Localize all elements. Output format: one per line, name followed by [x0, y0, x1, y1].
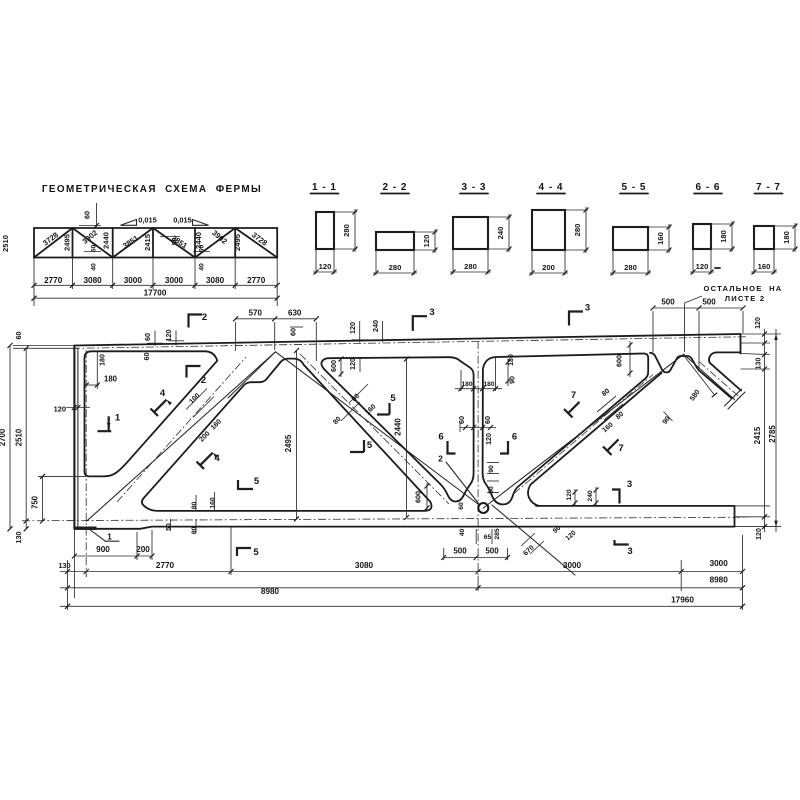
svg-text:2495: 2495 — [284, 434, 293, 452]
svg-text:60: 60 — [142, 353, 151, 361]
svg-text:80: 80 — [191, 502, 198, 510]
svg-text:17960: 17960 — [671, 596, 694, 605]
svg-text:130: 130 — [59, 561, 71, 570]
svg-text:3080: 3080 — [83, 276, 102, 285]
svg-text:8980: 8980 — [261, 587, 280, 596]
svg-text:40: 40 — [199, 263, 206, 271]
svg-text:60: 60 — [483, 416, 492, 424]
svg-text:2495: 2495 — [63, 233, 72, 251]
svg-text:7 - 7: 7 - 7 — [756, 182, 781, 193]
svg-text:500: 500 — [702, 298, 716, 307]
svg-text:500: 500 — [453, 547, 467, 556]
svg-text:17700: 17700 — [144, 289, 167, 298]
svg-text:3000: 3000 — [165, 276, 184, 285]
svg-text:ОСТАЛЬНОЕ НА: ОСТАЛЬНОЕ НА — [704, 284, 783, 293]
svg-text:2495: 2495 — [233, 233, 242, 251]
svg-text:2510: 2510 — [1, 235, 10, 252]
svg-text:6: 6 — [512, 432, 517, 443]
svg-text:2: 2 — [438, 454, 443, 464]
svg-text:900: 900 — [96, 545, 110, 554]
svg-text:3: 3 — [429, 307, 434, 318]
svg-text:180: 180 — [782, 231, 791, 244]
svg-text:2: 2 — [201, 375, 206, 386]
svg-text:180: 180 — [483, 381, 494, 388]
svg-text:180: 180 — [100, 354, 107, 366]
svg-text:50: 50 — [166, 523, 173, 531]
svg-text:5: 5 — [367, 440, 373, 451]
svg-text:280: 280 — [624, 263, 637, 272]
svg-text:3: 3 — [585, 303, 590, 314]
svg-text:200: 200 — [136, 545, 150, 554]
svg-text:8980: 8980 — [710, 576, 729, 585]
svg-text:90: 90 — [510, 376, 517, 384]
svg-text:3080: 3080 — [355, 561, 374, 570]
svg-text:65: 65 — [484, 534, 492, 541]
svg-text:3: 3 — [627, 546, 632, 557]
svg-text:2700: 2700 — [0, 428, 7, 446]
svg-text:ЛИСТЕ 2: ЛИСТЕ 2 — [725, 294, 766, 303]
svg-text:2510: 2510 — [15, 428, 24, 446]
svg-text:1: 1 — [107, 532, 112, 542]
svg-text:160: 160 — [758, 262, 771, 271]
svg-text:120: 120 — [348, 358, 357, 370]
svg-text:240: 240 — [371, 320, 380, 332]
svg-text:750: 750 — [31, 495, 40, 509]
svg-text:7: 7 — [618, 443, 623, 454]
svg-text:5 - 5: 5 - 5 — [621, 182, 646, 193]
svg-text:90: 90 — [172, 238, 179, 246]
svg-text:2415: 2415 — [143, 233, 152, 251]
svg-text:5: 5 — [390, 393, 396, 404]
svg-text:180: 180 — [508, 354, 515, 366]
svg-text:60: 60 — [458, 502, 465, 510]
svg-text:120: 120 — [566, 489, 573, 501]
svg-text:0,015: 0,015 — [173, 216, 192, 225]
svg-text:120: 120 — [348, 322, 357, 334]
svg-text:600: 600 — [329, 360, 338, 372]
svg-text:50: 50 — [488, 486, 495, 494]
svg-text:60: 60 — [83, 211, 92, 219]
svg-text:3: 3 — [627, 479, 632, 490]
svg-text:2770: 2770 — [44, 276, 63, 285]
svg-text:6 - 6: 6 - 6 — [695, 182, 720, 193]
svg-text:130: 130 — [756, 358, 763, 370]
svg-text:120: 120 — [486, 433, 493, 445]
svg-text:3080: 3080 — [206, 276, 225, 285]
svg-text:7: 7 — [571, 390, 576, 401]
svg-text:ГЕОМЕТРИЧЕСКАЯ СХЕМА ФЕРМЫ: ГЕОМЕТРИЧЕСКАЯ СХЕМА ФЕРМЫ — [42, 184, 262, 195]
svg-text:160: 160 — [210, 497, 217, 509]
svg-text:120: 120 — [755, 317, 762, 329]
svg-text:2770: 2770 — [156, 561, 175, 570]
svg-text:280: 280 — [464, 262, 477, 271]
svg-text:4 - 4: 4 - 4 — [538, 182, 563, 193]
svg-text:120: 120 — [756, 528, 763, 540]
svg-text:2770: 2770 — [247, 276, 266, 285]
svg-text:4: 4 — [214, 453, 220, 464]
svg-text:90: 90 — [488, 465, 495, 473]
svg-text:120: 120 — [54, 405, 66, 414]
svg-text:3000: 3000 — [124, 276, 143, 285]
svg-text:4: 4 — [160, 388, 166, 399]
svg-text:600: 600 — [615, 355, 624, 367]
svg-text:120: 120 — [422, 235, 431, 248]
svg-text:500: 500 — [661, 298, 675, 307]
svg-text:240: 240 — [496, 227, 505, 240]
svg-text:285: 285 — [494, 528, 501, 540]
svg-text:500: 500 — [485, 547, 499, 556]
svg-text:280: 280 — [389, 263, 402, 272]
svg-text:570: 570 — [249, 309, 263, 318]
svg-text:130: 130 — [14, 532, 23, 544]
svg-text:180: 180 — [719, 230, 728, 243]
svg-text:1: 1 — [115, 413, 121, 424]
svg-text:5: 5 — [254, 476, 260, 487]
svg-text:6: 6 — [438, 432, 443, 443]
svg-text:3000: 3000 — [710, 559, 729, 568]
svg-text:600: 600 — [414, 491, 423, 503]
svg-text:40: 40 — [91, 263, 98, 271]
svg-text:280: 280 — [342, 224, 351, 237]
svg-text:120: 120 — [319, 262, 332, 271]
svg-text:120: 120 — [164, 330, 173, 342]
svg-text:1 - 1: 1 - 1 — [312, 182, 337, 193]
svg-text:2: 2 — [202, 312, 207, 323]
svg-text:630: 630 — [288, 309, 302, 318]
svg-text:2440: 2440 — [394, 418, 403, 436]
svg-text:2415: 2415 — [753, 426, 762, 444]
svg-text:160: 160 — [656, 232, 665, 245]
svg-text:2 - 2: 2 - 2 — [382, 182, 407, 193]
svg-text:60: 60 — [14, 332, 23, 340]
svg-text:2785: 2785 — [768, 425, 777, 443]
svg-text:5: 5 — [253, 547, 259, 558]
svg-text:3 - 3: 3 - 3 — [461, 182, 486, 193]
svg-text:0,015: 0,015 — [138, 216, 157, 225]
svg-text:120: 120 — [696, 262, 709, 271]
svg-text:40: 40 — [459, 529, 466, 537]
svg-text:180: 180 — [104, 375, 118, 384]
svg-text:200: 200 — [542, 263, 555, 272]
svg-text:80: 80 — [191, 527, 198, 535]
svg-text:2440: 2440 — [102, 232, 111, 249]
svg-text:60: 60 — [143, 333, 152, 341]
svg-text:60: 60 — [457, 416, 466, 424]
svg-text:280: 280 — [573, 224, 582, 237]
svg-text:180: 180 — [461, 381, 472, 388]
svg-text:60: 60 — [289, 328, 298, 336]
svg-text:240: 240 — [587, 490, 594, 502]
svg-text:3000: 3000 — [563, 561, 582, 570]
